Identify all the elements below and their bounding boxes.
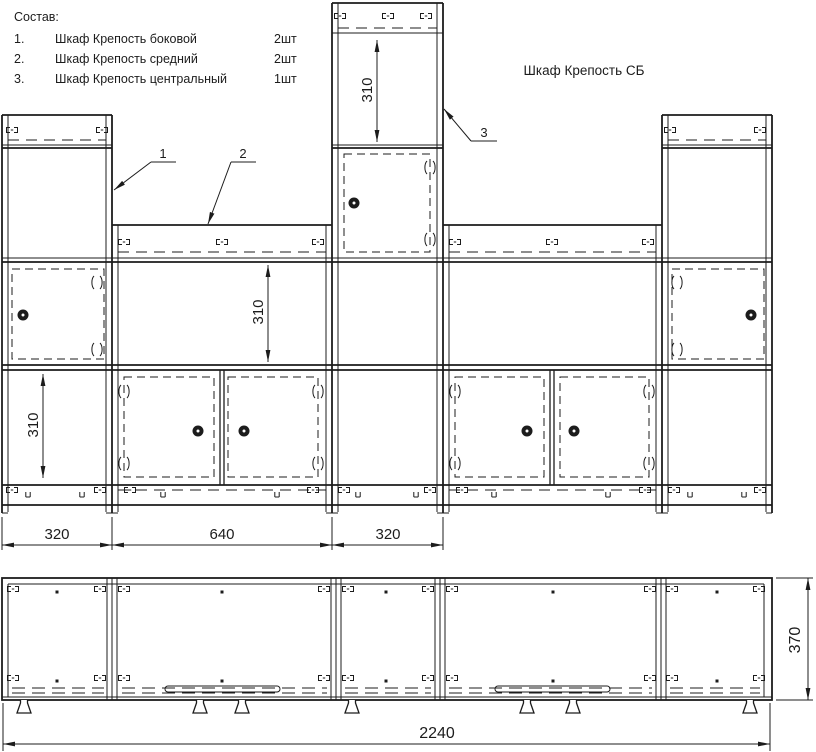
foot [566,700,580,713]
part-item-qty: 1шт [274,72,297,86]
cam-connector [217,240,228,245]
parts-list: Состав: 1. Шкаф Крепость боковой 2шт 2. … [14,10,297,86]
dim-bottom-opening: 310 [25,412,42,437]
part-item-name: Шкаф Крепость боковой [55,32,197,46]
cam-connector [643,240,654,245]
module-side-left [2,115,112,513]
callout-central-cabinet: 3 [444,109,497,141]
cam-connector [450,240,461,245]
cam-connector [335,14,346,19]
plan-view [2,578,772,713]
cam-connector [95,488,106,493]
dim-middle-opening: 310 [250,299,267,324]
fitting-mark [606,492,610,497]
part-item-number: 1. [14,32,24,46]
fitting-mark [356,492,360,497]
hinge-mark [92,276,102,289]
door-knob [18,310,29,321]
callout-middle-cabinet: 2 [208,146,256,224]
fitting-mark [26,492,30,497]
drawing-title: Шкаф Крепость СБ [524,63,645,78]
hinge-mark [672,343,682,356]
module-middle-right [443,225,662,512]
foot [17,700,31,713]
part-item-number: 3. [14,72,24,86]
cam-connector [339,488,350,493]
dim-total-width: 2240 [419,725,455,742]
callout-label: 2 [239,146,246,161]
cam-connector [425,488,436,493]
module-side-right [662,115,772,513]
foot [345,700,359,713]
blueprint-page: Состав: 1. Шкаф Крепость боковой 2шт 2. … [0,0,816,752]
plan-cam-connectors [8,587,765,681]
parts-list-header: Состав: [14,10,59,24]
cam-connector [313,240,324,245]
foot [520,700,534,713]
module-middle-left [112,225,332,512]
door-knob [239,426,250,437]
part-item-qty: 2шт [274,32,297,46]
cam-connector [665,128,676,133]
fitting-mark [742,492,746,497]
callouts: 1 2 3 [114,109,497,224]
part-item-name: Шкаф Крепость средний [55,52,198,66]
callout-side-cabinet: 1 [114,146,176,190]
fitting-mark [414,492,418,497]
cam-connector [755,488,766,493]
fitting-mark [161,492,165,497]
part-item-number: 2. [14,52,24,66]
door-knob [569,426,580,437]
hinge-mark [672,276,682,289]
callout-label: 1 [159,146,166,161]
door-knob [193,426,204,437]
door-knob [522,426,533,437]
plan-kick-rails [12,686,760,693]
fitting-mark [275,492,279,497]
fitting-mark [688,492,692,497]
fitting-mark [492,492,496,497]
foot [193,700,207,713]
dim-middle-width: 640 [209,526,234,543]
hinge-mark [92,343,102,356]
plan-screw-marks [56,591,719,683]
drawing-canvas: Состав: 1. Шкаф Крепость боковой 2шт 2. … [0,0,816,752]
fitting-mark [80,492,84,497]
cam-connector [547,240,558,245]
cam-connector [669,488,680,493]
kick-rail-slot [165,686,280,692]
door-knob [746,310,757,321]
foot [235,700,249,713]
dim-side-width: 320 [44,526,69,543]
kick-rail-slot [495,686,610,692]
plan-feet [17,700,757,713]
foot [743,700,757,713]
dim-central-width: 320 [375,526,400,543]
front-dimensions: 310 310 310 320 640 320 [2,40,443,550]
cam-connector [755,128,766,133]
cam-connector [119,240,130,245]
door-knob [349,198,360,209]
callout-label: 3 [480,125,487,140]
cam-connector [383,14,394,19]
cam-connector [421,14,432,19]
plan-dimensions: 2240 370 [3,578,813,751]
part-item-qty: 2шт [274,52,297,66]
dim-top-opening: 310 [359,77,376,102]
dim-depth: 370 [787,627,804,654]
part-item-name: Шкаф Крепость центральный [55,72,227,86]
